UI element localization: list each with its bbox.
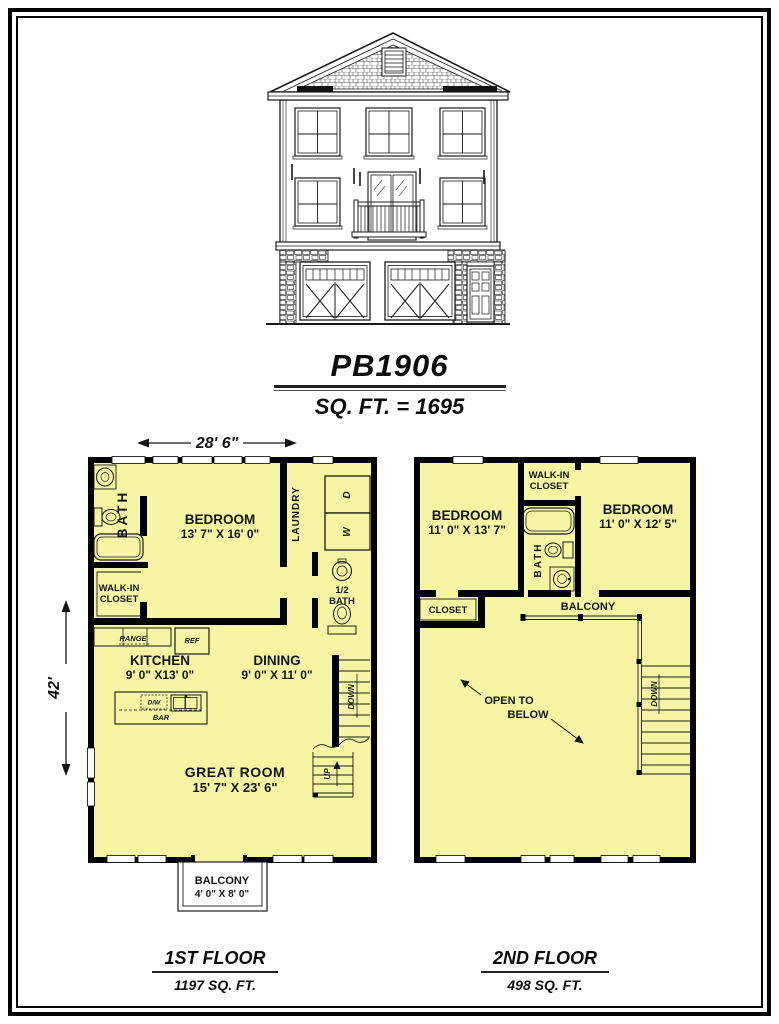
room-label-walkin-1: WALK-IN — [529, 470, 570, 481]
second-floor-name: 2ND FLOOR — [481, 948, 609, 973]
stairs-down-label: DOWN — [650, 681, 659, 707]
first-floor-name: 1ST FLOOR — [152, 948, 277, 973]
second-floor-sqft: 498 SQ. FT. — [445, 977, 645, 993]
room-size-bedroom: 13' 7" X 16' 0" — [181, 527, 259, 541]
second-floor-plan: BEDROOM 11' 0" X 13' 7" WALK-IN CLOSET B… — [411, 452, 701, 867]
dishwasher-label: D/W — [148, 700, 162, 707]
room-label-bedroom: BEDROOM — [185, 512, 256, 527]
first-floor-label-block: 1ST FLOOR 1197 SQ. FT. — [115, 948, 315, 993]
room-label-closet: CLOSET — [429, 605, 468, 616]
dryer-label: D — [342, 491, 353, 498]
room-label-dining: DINING — [253, 653, 300, 668]
depth-dimension-label: 42' — [46, 676, 63, 700]
room-label-kitchen: KITCHEN — [130, 653, 190, 668]
room-size-bedroom-right: 11' 0" X 12' 5" — [599, 517, 677, 531]
plan-number: PB1906 — [0, 348, 779, 384]
room-label-half-bath-1: 1/2 — [335, 585, 348, 596]
room-size-dining: 9' 0" X 11' 0" — [241, 668, 312, 682]
total-square-footage: SQ. FT. = 1695 — [0, 394, 779, 420]
title-underline-heavy — [274, 385, 506, 388]
plan-title-block: PB1906 SQ. FT. = 1695 — [0, 348, 779, 420]
eave-shadow-left — [297, 86, 333, 92]
stairs-down-label: DOWN — [347, 684, 356, 710]
stairs-up-label: UP — [323, 768, 332, 780]
room-size-kitchen: 9' 0" X13' 0" — [126, 668, 194, 682]
first-floor-sqft: 1197 SQ. FT. — [115, 977, 315, 993]
refrigerator-label: REF — [185, 636, 200, 645]
room-label-great-room: GREAT ROOM — [185, 764, 285, 780]
open-to-below-label-1: OPEN TO — [484, 695, 534, 707]
washer-label: W — [342, 526, 353, 537]
eave-shadow-right — [443, 86, 497, 92]
second-floor-label-block: 2ND FLOOR 498 SQ. FT. — [445, 948, 645, 993]
room-label-bedroom-left: BEDROOM — [432, 508, 503, 523]
room-label-walkin-2: CLOSET — [530, 481, 569, 492]
room-label-bath: BATH — [533, 542, 544, 577]
room-label-walkin-1: WALK-IN — [99, 583, 140, 594]
room-label-half-bath-2: BATH — [329, 596, 355, 607]
room-label-balcony: BALCONY — [561, 601, 616, 613]
title-underline-light — [274, 390, 506, 391]
room-label-bedroom-right: BEDROOM — [603, 502, 674, 517]
elevation-body — [266, 33, 510, 324]
range-label: RANGE — [119, 634, 147, 643]
open-to-below-label-2: BELOW — [508, 709, 550, 721]
room-label-bath: BATH — [115, 490, 130, 539]
dim-arrow-up — [62, 600, 71, 612]
room-size-bedroom-left: 11' 0" X 13' 7" — [428, 523, 506, 537]
garage-door-right — [385, 262, 455, 320]
room-label-balcony: BALCONY — [195, 875, 250, 887]
room-size-balcony: 4' 0" X 8' 0" — [195, 889, 250, 900]
room-label-laundry: LAUNDRY — [291, 486, 302, 542]
room-label-walkin-2: CLOSET — [100, 594, 139, 605]
first-floor-plan: BATH BEDROOM 13' 7" X 16' 0" WALK-IN CLO… — [85, 452, 385, 922]
bar-label: BAR — [153, 713, 170, 722]
house-elevation-drawing — [262, 30, 512, 330]
entry-door — [467, 266, 494, 322]
plan-sheet: PB1906 SQ. FT. = 1695 28' 6" 42' — [0, 0, 779, 1024]
depth-dimension: 42' — [40, 598, 76, 778]
dim-arrow-right — [285, 439, 297, 448]
dim-arrow-down — [62, 764, 71, 776]
garage-door-left — [300, 262, 370, 320]
dim-arrow-left — [137, 439, 149, 448]
room-size-great-room: 15' 7" X 23' 6" — [192, 780, 277, 795]
laundry-appliances — [325, 476, 370, 550]
width-dimension-label: 28' 6" — [195, 435, 239, 452]
balcony-1st: BALCONY 4' 0" X 8' 0" — [178, 862, 267, 911]
